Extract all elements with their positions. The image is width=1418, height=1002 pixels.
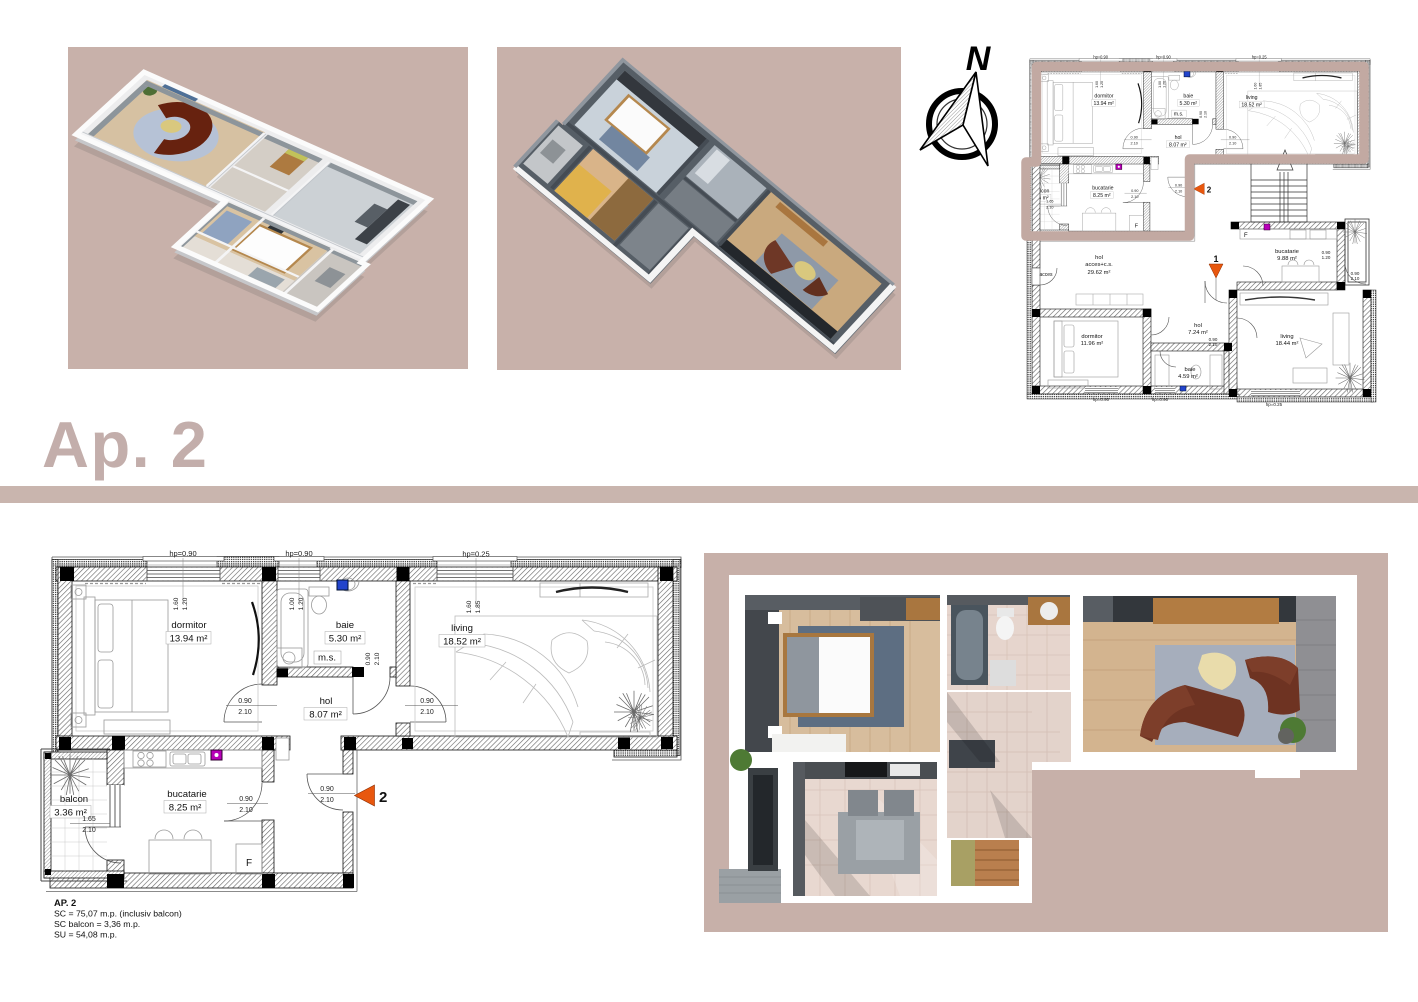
svg-text:0.90: 0.90 (238, 698, 252, 705)
svg-text:SC = 75,07 m.p. (inclusiv bal: SC = 75,07 m.p. (inclusiv balcon) (54, 909, 182, 919)
svg-text:0.90: 0.90 (320, 786, 334, 793)
svg-text:Ap. 2: Ap. 2 (42, 408, 208, 481)
svg-text:acces+c.s.: acces+c.s. (1085, 262, 1113, 268)
svg-text:18.44 m²: 18.44 m² (1276, 341, 1299, 347)
svg-text:dormitor: dormitor (1081, 334, 1102, 340)
svg-text:0.90: 0.90 (365, 652, 372, 665)
svg-text:7.24 m²: 7.24 m² (1188, 330, 1208, 336)
svg-text:N: N (966, 40, 992, 78)
svg-text:1.60: 1.60 (466, 600, 473, 613)
svg-text:9.88 m²: 9.88 m² (1277, 256, 1297, 262)
svg-text:hp=0.90: hp=0.90 (169, 549, 196, 558)
svg-text:acces: acces (1039, 272, 1053, 278)
svg-text:1.20: 1.20 (182, 597, 189, 610)
svg-text:hp=0.90: hp=0.90 (1093, 397, 1110, 402)
svg-text:0.90: 0.90 (420, 698, 434, 705)
svg-text:2: 2 (379, 789, 387, 806)
svg-text:F: F (1244, 233, 1248, 239)
svg-text:1.00: 1.00 (289, 597, 296, 610)
svg-text:SC balcon = 3,36 m.p.: SC balcon = 3,36 m.p. (54, 919, 140, 929)
svg-text:hp=0.90: hp=0.90 (285, 549, 312, 558)
svg-text:1.85: 1.85 (475, 600, 482, 613)
svg-text:hp=0.90: hp=0.90 (1152, 397, 1169, 402)
svg-text:bucatarie: bucatarie (167, 789, 206, 800)
svg-text:F: F (246, 858, 252, 869)
svg-text:hol: hol (320, 696, 333, 707)
svg-text:1: 1 (1213, 254, 1218, 264)
svg-text:8.25 m²: 8.25 m² (169, 803, 202, 814)
svg-text:29.62 m²: 29.62 m² (1088, 270, 1111, 276)
svg-text:dormitor: dormitor (171, 620, 207, 631)
svg-text:11.96 m²: 11.96 m² (1081, 341, 1104, 347)
svg-text:1.20: 1.20 (298, 597, 305, 610)
svg-text:1.20: 1.20 (1322, 255, 1331, 260)
svg-text:balcon: balcon (60, 794, 88, 805)
svg-text:baie: baie (1185, 367, 1196, 373)
svg-text:hol: hol (1095, 255, 1103, 261)
svg-text:2.10: 2.10 (1351, 276, 1360, 281)
svg-text:18.52 m²: 18.52 m² (443, 637, 482, 648)
svg-text:baie: baie (336, 620, 354, 631)
svg-text:AP. 2: AP. 2 (54, 897, 76, 908)
svg-text:2.10: 2.10 (239, 807, 253, 814)
svg-text:2.10: 2.10 (238, 709, 252, 716)
svg-text:2.10: 2.10 (420, 709, 434, 716)
svg-text:2.10: 2.10 (374, 652, 381, 665)
svg-text:4.59 m²: 4.59 m² (1178, 374, 1198, 380)
svg-text:m.s.: m.s. (318, 653, 336, 664)
svg-text:5.30 m²: 5.30 m² (329, 634, 362, 645)
svg-text:SU = 54,08 m.p.: SU = 54,08 m.p. (54, 930, 117, 940)
svg-text:2.10: 2.10 (1209, 342, 1218, 347)
svg-text:living: living (1280, 334, 1293, 340)
svg-text:1.65: 1.65 (82, 816, 96, 823)
svg-text:13.94 m²: 13.94 m² (170, 634, 209, 645)
svg-text:living: living (451, 623, 473, 634)
svg-text:0.90: 0.90 (239, 796, 253, 803)
svg-text:hp=0.25: hp=0.25 (1266, 402, 1283, 407)
svg-text:1.60: 1.60 (173, 597, 180, 610)
svg-text:bucatarie: bucatarie (1275, 249, 1299, 255)
svg-text:8.07 m²: 8.07 m² (309, 710, 342, 721)
svg-text:2.10: 2.10 (320, 797, 334, 804)
svg-text:hp=0.25: hp=0.25 (462, 550, 489, 559)
svg-text:2.10: 2.10 (82, 827, 96, 834)
svg-text:hol: hol (1194, 323, 1202, 329)
